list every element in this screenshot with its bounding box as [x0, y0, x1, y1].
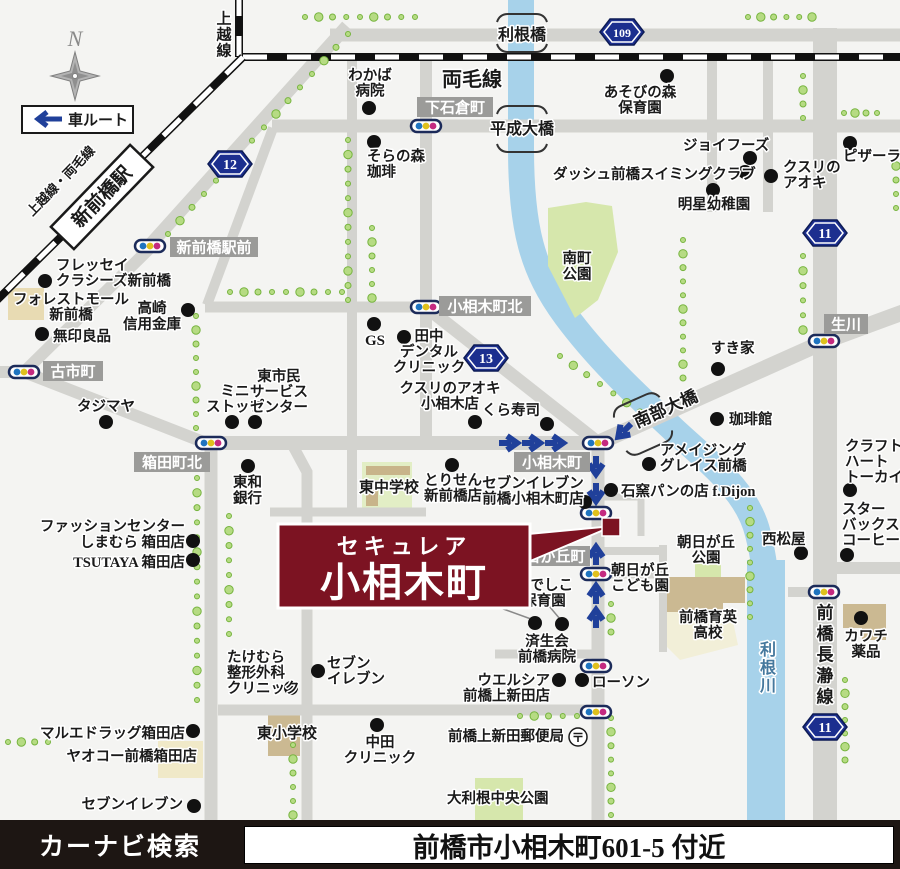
poi-dot [468, 415, 482, 429]
tree-icon [681, 279, 686, 284]
tree-icon [808, 13, 816, 21]
tree-icon [195, 698, 200, 703]
poi-label: イレブン [327, 670, 385, 688]
poi-shimamura-hakoda: ファッションセンターしまむら 箱田店 [40, 518, 200, 551]
tree-icon [166, 232, 171, 237]
poi-joyfoods: ジョイフーズ [683, 136, 770, 165]
tree-icon [748, 506, 753, 511]
poi-takasaki-shinkin-bank: 高崎信用金庫 [123, 299, 195, 333]
poi-label: クリニック [344, 750, 417, 767]
intersection-label: 小相木町北 [439, 296, 531, 316]
svg-text:下石倉町: 下石倉町 [425, 99, 485, 117]
tree-icon [194, 426, 199, 431]
poi-dot [843, 136, 857, 150]
poi-label: タジマヤ [77, 398, 135, 415]
poi-label: バックス [842, 517, 900, 534]
poi-dot [764, 169, 778, 183]
svg-text:線: 線 [216, 42, 231, 60]
tree-icon [194, 412, 199, 417]
tree-icon [680, 320, 686, 326]
tree-icon [345, 282, 351, 288]
svg-text:109: 109 [613, 26, 631, 40]
tree-icon [346, 254, 351, 259]
poi-label: センター [250, 399, 308, 416]
tree-icon [194, 623, 200, 629]
tree-icon [748, 601, 753, 606]
tree-icon [747, 532, 753, 538]
poi-label: 朝日が丘 [677, 533, 735, 551]
tree-icon [311, 289, 317, 295]
poi-label: 前橋上新田店 [463, 687, 550, 705]
tree-icon [227, 617, 232, 622]
svg-text:根: 根 [760, 658, 776, 677]
tree-icon [358, 15, 363, 20]
poi-label: 西松屋 [762, 530, 806, 548]
tree-icon [801, 313, 806, 318]
tree-icon [863, 110, 869, 116]
poi-tsutaya-hakoda: TSUTAYA 箱田店 [73, 553, 200, 571]
poi-label: セブン [327, 654, 371, 672]
poi-dot [38, 274, 52, 288]
tree-icon [289, 811, 297, 819]
tree-icon [195, 653, 200, 658]
tree-icon [370, 268, 375, 273]
poi-starbucks-coffee: スターバックスコーヒー [840, 501, 900, 562]
poi-label: アメイジング [660, 441, 747, 459]
poi-label: 珈琲 [367, 163, 396, 181]
tree-icon [195, 476, 200, 481]
joetsu-line-label: 上越線 [215, 11, 232, 60]
traffic-light-icon [581, 568, 611, 580]
tree-icon [746, 15, 751, 20]
tree-icon [842, 704, 848, 710]
tree-icon [801, 74, 806, 79]
tree-icon [303, 15, 308, 20]
address-text: 前橋市小相木町601-5 付近 [244, 826, 894, 864]
poi-seven-eleven-southwest: セブンイレブン [82, 795, 202, 813]
poi-label: ピザーラ [843, 148, 900, 165]
tree-icon [385, 14, 391, 20]
tree-icon [289, 755, 297, 763]
tree-icon [608, 743, 614, 749]
tree-icon [32, 739, 38, 745]
poi-label: トーカイ [845, 469, 900, 486]
svg-text:箱田町北: 箱田町北 [142, 454, 202, 472]
intersection-label: 新前橋駅前 [170, 237, 258, 257]
ryomo-line-label: 両毛線 [442, 67, 502, 91]
tree-icon [176, 216, 184, 224]
poi-coffee-kan: 珈琲館 [710, 410, 773, 428]
traffic-light-icon [809, 335, 839, 347]
poi-label: こども園 [611, 578, 669, 595]
tree-icon [530, 712, 538, 720]
svg-text:12: 12 [223, 158, 237, 173]
poi-higashi-junior-high: 東中学校 [359, 478, 420, 496]
poi-label: スター [842, 501, 886, 518]
poi-dot [225, 415, 239, 429]
tree-icon [270, 290, 275, 295]
poi-label: ファッションセンター [40, 518, 185, 535]
tree-icon [370, 282, 375, 287]
tree-icon [518, 714, 523, 719]
poi-pizza-la: ピザーラ [843, 136, 900, 165]
poi-label: ヤオコー前橋箱田店 [67, 747, 198, 765]
poi-marue-drug-hakoda: マルエドラッグ箱田店 [40, 724, 200, 742]
tree-icon [558, 354, 563, 359]
poi-label: 明星幼稚園 [678, 195, 751, 213]
poi-dot [241, 459, 255, 473]
poi-label: ミニ [221, 384, 250, 400]
poi-higashi-elementary: 東小学校 [257, 724, 318, 742]
route-sign-109: 109 [600, 19, 644, 45]
compass-north-label: N [67, 26, 84, 51]
tree-icon [747, 587, 753, 593]
poi-label: 前橋上新田郵便局 [448, 727, 564, 745]
poi-label: 高校 [694, 624, 723, 642]
poi-label: あそびの森 [604, 83, 677, 101]
tree-icon [370, 226, 375, 231]
poi-label: マルエドラッグ箱田店 [40, 724, 185, 742]
tree-icon [194, 682, 200, 688]
tree-icon [195, 594, 200, 599]
poi-higashi-civic-service-center: 東市民サービスセンター [248, 367, 308, 429]
tree-icon [842, 757, 848, 763]
poi-dot [445, 458, 459, 472]
poi-dot [397, 330, 411, 344]
intersection-label: 生川 [824, 314, 868, 334]
tree-icon [228, 290, 233, 295]
tree-icon [346, 181, 351, 186]
tree-icon [801, 116, 806, 121]
svg-text:橋: 橋 [817, 624, 835, 644]
poi-dot [552, 673, 566, 687]
poi-label: 東中学校 [359, 478, 420, 496]
poi-label: クラフト [845, 438, 900, 455]
svg-text:前: 前 [817, 603, 834, 623]
poi-label: 珈琲館 [729, 410, 773, 428]
map-canvas: 利根橋平成大橋南部大橋 12109131111 新前橋駅前下石倉町小相木町北古市… [0, 0, 900, 820]
tree-icon [194, 356, 199, 361]
tree-icon [679, 250, 687, 258]
poi-dot [710, 412, 724, 426]
svg-text:上: 上 [216, 11, 231, 28]
intersection-label: 古市町 [43, 361, 103, 381]
poi-dot [367, 317, 381, 331]
poi-label: 銀行 [233, 489, 262, 507]
poi-dash-swimming-club: ダッシュ前橋スイミングクラブ [553, 165, 756, 183]
tree-icon [296, 288, 304, 296]
poi-dot [186, 534, 200, 548]
poi-label: 前橋病院 [518, 648, 576, 666]
traffic-light-icon [9, 366, 39, 378]
poi-label: クスリのアオキ [399, 380, 500, 397]
poi-dot [186, 553, 200, 567]
svg-text:瀞: 瀞 [817, 666, 834, 686]
tree-icon [608, 798, 614, 804]
traffic-light-icon [581, 660, 611, 672]
tree-icon [225, 586, 233, 594]
poi-seven-eleven-hakoda: セブンイレブン [311, 654, 385, 688]
tree-icon [771, 14, 777, 20]
tree-icon [609, 771, 614, 776]
tree-icon [320, 56, 328, 64]
tree-icon [344, 209, 352, 217]
tree-icon [345, 166, 351, 172]
tree-icon [399, 15, 404, 20]
poi-seven-eleven-koaigicho: セブンイレブン前橋小相木町店 [482, 474, 592, 509]
tree-icon [340, 290, 345, 295]
tree-icon [346, 138, 351, 143]
tree-icon [797, 15, 802, 20]
tree-icon [225, 527, 233, 535]
svg-text:小相木町北: 小相木町北 [447, 298, 522, 316]
tree-icon [746, 572, 754, 580]
route-sign-11: 11 [803, 714, 847, 740]
tree-icon [575, 714, 580, 719]
poi-label: 保育園 [617, 99, 662, 117]
poi-label: 石窯パンの店 f.Dijon [620, 482, 755, 500]
tree-icon [346, 298, 351, 303]
poi-dot [370, 718, 384, 732]
svg-text:13: 13 [479, 352, 493, 367]
tree-icon [6, 740, 11, 745]
tree-icon [226, 602, 232, 608]
tree-icon [598, 382, 603, 387]
tree-icon [193, 666, 201, 674]
poi-label: フレッセイ [56, 257, 129, 274]
tree-icon [569, 361, 577, 369]
tree-icon [272, 110, 280, 118]
poi-asahigaoka-park: 朝日が丘公園 [677, 533, 735, 567]
poi-label: 新前橋 [49, 306, 93, 324]
tree-icon [344, 150, 352, 158]
intersection-label: 下石倉町 [417, 97, 493, 117]
tree-icon [250, 138, 255, 143]
poi-label: デンタル [400, 343, 458, 361]
tree-icon [195, 579, 200, 584]
poi-lawson: ローソン [575, 673, 650, 691]
poi-asahigaoka-kodomoen: 朝日が丘こども園 [611, 561, 669, 595]
tree-icon [262, 125, 267, 130]
callout-name: 小相木町 [320, 560, 488, 605]
svg-text:11: 11 [818, 721, 831, 736]
poi-label: TSUTAYA 箱田店 [73, 553, 185, 571]
tree-icon [227, 514, 232, 519]
poi-meisei-kindergarten: 明星幼稚園 [678, 183, 751, 213]
poi-otone-central-park: 大利根中央公園 [447, 789, 549, 807]
poi-label: 東和 [233, 473, 262, 491]
poi-label: ジョイフーズ [683, 136, 770, 154]
tree-icon [227, 558, 232, 563]
poi-label: わかば [348, 67, 392, 84]
tree-icon [346, 239, 351, 244]
poi-dot [794, 546, 808, 560]
tree-icon [17, 738, 25, 746]
poi-label: そらの森 [367, 147, 425, 165]
tree-icon [894, 192, 899, 197]
poi-soranomori-coffee: そらの森珈琲 [367, 135, 425, 181]
tree-icon [681, 334, 686, 339]
poi-dot [706, 183, 720, 197]
bridge-label: 利根橋 [498, 25, 547, 44]
shinmaebashi-station: 新前橋駅 [51, 145, 153, 249]
tree-icon [584, 372, 590, 378]
tree-icon [192, 382, 200, 390]
tree-icon [344, 15, 349, 20]
poi-label: 薬品 [852, 643, 881, 661]
tree-icon [800, 283, 806, 289]
tree-icon [291, 799, 296, 804]
tree-icon [298, 85, 303, 90]
poi-dot [99, 415, 113, 429]
poi-dot [367, 135, 381, 149]
svg-text:長: 長 [817, 646, 835, 665]
route-sign-12: 12 [208, 151, 252, 177]
tree-icon [346, 196, 351, 201]
poi-label: セブンイレブン [82, 795, 184, 813]
tree-icon [195, 520, 200, 525]
poi-label: 無印良品 [53, 327, 111, 345]
poi-fressay-classes-shinmaebashi: フレッセイクラシーズ新前橋 [38, 257, 171, 290]
poi-dot [604, 483, 618, 497]
poi-label: セブンイレブン [482, 474, 584, 492]
poi-label: グレイス前橋 [660, 457, 747, 475]
bridge-label: 平成大橋 [490, 119, 555, 138]
tree-icon [799, 86, 807, 94]
poi-minamimachi-park: 南町公園 [563, 249, 592, 283]
tree-icon [346, 32, 351, 37]
tree-icon [194, 370, 199, 375]
poi-label: 公園 [692, 550, 721, 567]
tree-icon [310, 72, 315, 77]
tree-icon [748, 560, 753, 565]
tree-icon [546, 713, 552, 719]
tree-icon [369, 253, 375, 259]
tree-icon [841, 742, 849, 750]
tree-icon [290, 770, 296, 776]
intersection-label: 箱田町北 [134, 452, 210, 472]
poi-dot [362, 101, 376, 115]
tree-icon [193, 607, 201, 615]
tree-icon [681, 293, 686, 298]
poi-asobinomori-nursery: あそびの森保育園 [604, 69, 677, 117]
svg-text:利: 利 [760, 640, 776, 659]
traffic-light-icon [196, 437, 226, 449]
ikuei-building [665, 577, 745, 612]
tree-icon [193, 341, 199, 347]
compass-rose-icon: N [51, 26, 99, 100]
tree-icon [607, 614, 615, 622]
tree-icon [368, 238, 376, 246]
tree-icon [681, 238, 686, 243]
poi-torisen-shinmaebashi: とりせん新前橋店 [424, 458, 482, 505]
tree-icon [842, 111, 847, 116]
traffic-light-icon [411, 301, 441, 313]
poi-label: クリニック [227, 680, 300, 697]
poi-label: クリニック [393, 359, 466, 376]
car-route-label: 車ルート [68, 111, 128, 129]
tree-icon [195, 638, 200, 643]
poi-yaoko-maebashi-hakoda: ヤオコー前橋箱田店 [67, 747, 198, 765]
tree-icon [746, 517, 754, 525]
poi-label: ダッシュ前橋スイミングクラブ [553, 165, 756, 183]
traffic-light-icon [581, 706, 611, 718]
navi-search-label: カーナビ検索 [0, 820, 240, 869]
poi-label: 大利根中央公園 [447, 789, 549, 807]
tree-icon [193, 489, 201, 497]
poi-dot [540, 417, 554, 431]
poi-saiseikai-maebashi-hospital: 済生会前橋病院 [518, 632, 576, 666]
poi-label: ハート [845, 455, 889, 471]
tree-icon [748, 615, 753, 620]
site-marker [602, 518, 620, 536]
tree-icon [255, 289, 261, 295]
poi-gs-station: GS [365, 317, 385, 349]
tree-icon [757, 13, 765, 21]
river-name-label: 利根川 [759, 640, 776, 695]
tree-icon [680, 265, 686, 271]
tree-icon [843, 678, 848, 683]
poi-label: GS [365, 333, 385, 349]
tree-icon [315, 13, 323, 21]
traffic-light-icon [411, 120, 441, 132]
poi-dot [854, 611, 868, 625]
callout-brand: セキュレア [337, 534, 472, 559]
poi-dot [248, 415, 262, 429]
poi-label: 高崎 [138, 299, 167, 317]
poi-dot [186, 724, 200, 738]
tree-icon [368, 294, 376, 302]
poi-dot [181, 303, 195, 317]
svg-text:線: 線 [817, 687, 834, 707]
tree-icon [893, 177, 899, 183]
tree-icon [609, 757, 614, 762]
tree-icon [784, 15, 789, 20]
tree-icon [345, 224, 351, 230]
tree-icon [607, 728, 615, 736]
svg-text:古市町: 古市町 [50, 363, 95, 381]
svg-text:11: 11 [818, 227, 831, 242]
poi-label: 整形外科 [227, 664, 285, 682]
poi-label: 南町 [563, 249, 592, 267]
poi-welcia-kamishinden: ウエルシア前橋上新田店 [463, 672, 566, 705]
tree-icon [226, 543, 232, 549]
poi-dot [35, 327, 49, 341]
svg-text:新前橋駅前: 新前橋駅前 [176, 239, 251, 257]
poi-label: 前橋育英 [679, 608, 737, 626]
poi-label: カワチ [844, 628, 888, 645]
poi-label: とりせん [424, 472, 482, 489]
tree-icon [189, 204, 195, 210]
tree-icon [841, 689, 849, 697]
tree-icon [333, 44, 339, 50]
poi-label: 東小学校 [257, 724, 318, 742]
poi-label: 前橋小相木町店 [482, 490, 584, 508]
tree-icon [851, 109, 859, 117]
route-sign-13: 13 [464, 345, 508, 371]
traffic-light-icon [809, 586, 839, 598]
tree-icon [194, 505, 200, 511]
tree-icon [801, 298, 806, 303]
post-office-mark [569, 728, 587, 746]
poi-dot [660, 69, 674, 83]
poi-tajimaya: タジマヤ [77, 398, 135, 429]
poi-label: フォレストモール [13, 292, 129, 308]
poi-label: 小相木店 [421, 395, 479, 413]
tree-icon [611, 391, 616, 396]
poi-craft-heart-tokai: クラフトハートトーカイ [843, 438, 900, 497]
tree-icon [748, 546, 753, 551]
